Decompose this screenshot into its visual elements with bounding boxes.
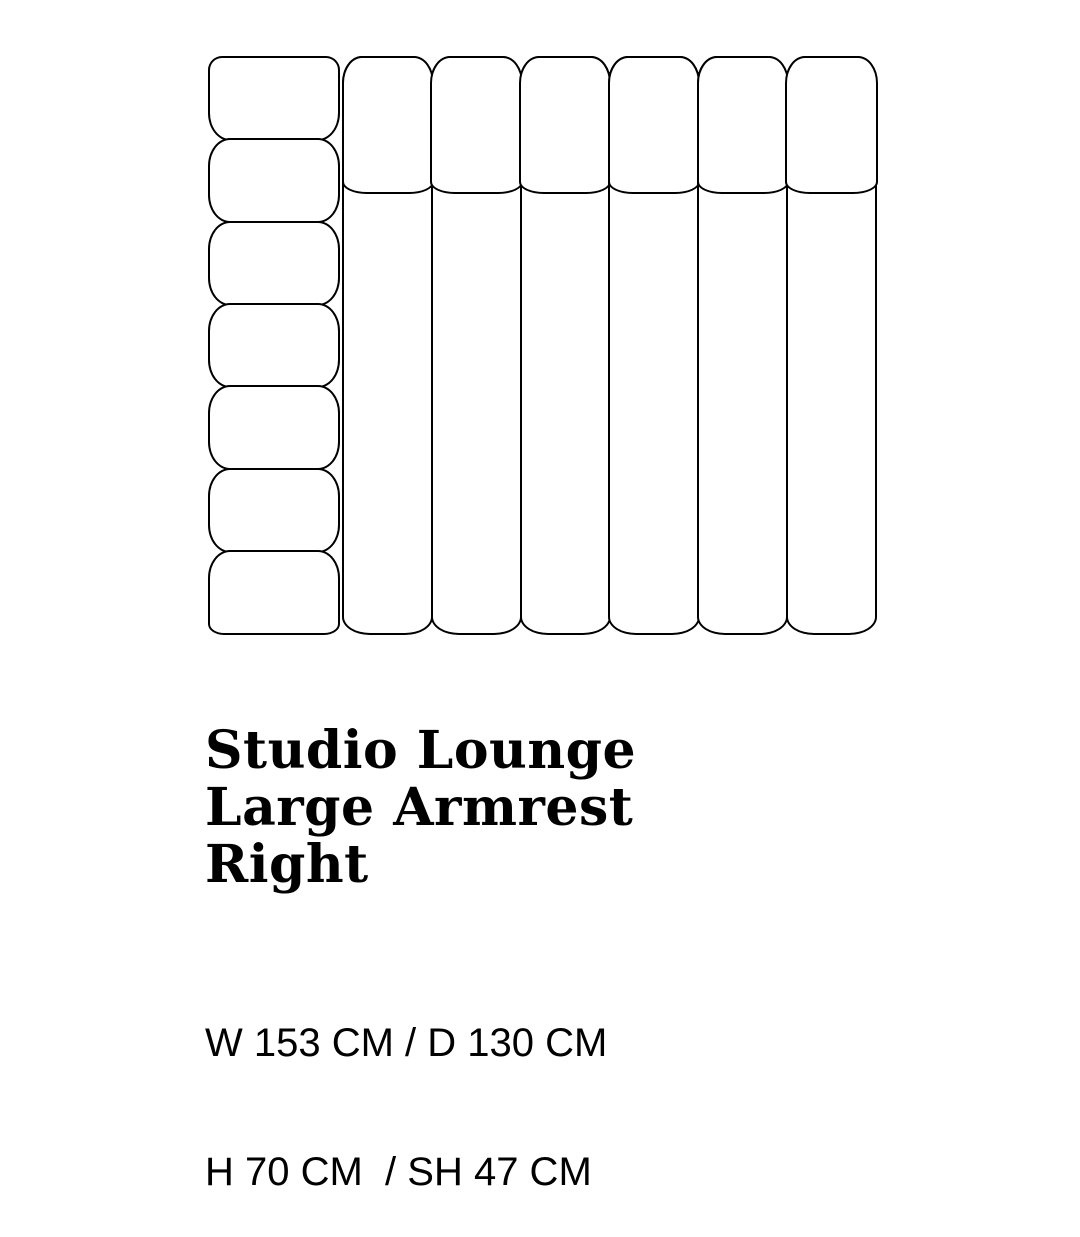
backrest-cushion: [430, 56, 522, 194]
seat-channel: [786, 56, 877, 635]
product-spec-page: { "product": { "title": "Studio Lounge\n…: [0, 0, 1080, 1080]
backrest-cushion: [342, 56, 434, 194]
backrest-cushion: [697, 56, 789, 194]
dimensions-line-1: W 153 CM / D 130 CM: [205, 1022, 607, 1065]
armrest-segment: [208, 385, 340, 470]
seat-channel: [431, 56, 522, 635]
backrest-cushion: [608, 56, 700, 194]
seat-channel: [608, 56, 699, 635]
armrest-segment: [208, 468, 340, 553]
armrest-segment: [208, 56, 340, 141]
sofa-module-top-view-diagram: [208, 56, 877, 635]
seat-channel: [520, 56, 611, 635]
seat-channel: [342, 56, 433, 635]
product-dimensions: W 153 CM / D 130 CM H 70 CM / SH 47 CM: [205, 936, 607, 1237]
armrest-left-column: [208, 56, 340, 635]
armrest-segment: [208, 303, 340, 388]
backrest-cushion: [785, 56, 877, 194]
dimensions-line-2: H 70 CM / SH 47 CM: [205, 1151, 607, 1194]
armrest-segment: [208, 138, 340, 223]
backrest-cushion: [519, 56, 611, 194]
armrest-segment: [208, 221, 340, 306]
armrest-segment: [208, 550, 340, 635]
seat-area: [342, 56, 877, 635]
seat-channel: [697, 56, 788, 635]
product-title: Studio Lounge Large Armrest Right: [205, 722, 636, 893]
